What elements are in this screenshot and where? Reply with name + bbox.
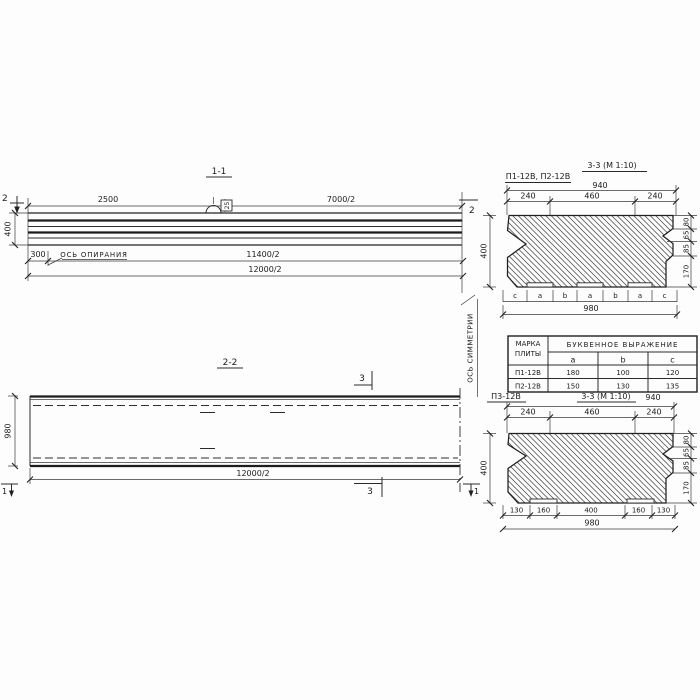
dim-label: 65 [683,448,691,457]
dim-label: 160 [537,507,550,515]
plate-marks-label: П1-12В, П2-12В [506,172,570,181]
dim-label: 240 [520,192,535,201]
dim-label: 400 [4,221,13,236]
section-1-1-title: 1-1 [212,167,227,177]
table-cell: П1-12В [515,369,541,377]
plate-mark-label: П3-12В [491,392,521,401]
support-axis-label: ОСЬ ОПИРАНИЯ [60,251,127,259]
section-3-3-bottom-view: П3-12В 3-3 (М 1:10) 940 240 460 240 130 … [480,392,698,529]
plate-parameters-table: МАРКА ПЛИТЫ БУКВЕННОЕ ВЫРАЖЕНИЕ a b c П1… [508,336,697,392]
table-row: П1-12В 180 100 120 [515,369,679,377]
table-cell: 120 [666,369,679,377]
section-3-3-title: 3-3 (М 1:10) [587,161,636,170]
cut-marker-label: 1 [2,487,7,496]
table-header-mark: ПЛИТЫ [515,350,541,358]
dim-label: 940 [645,393,660,402]
section-3-3-title: 3-3 (М 1:10) [581,392,630,401]
bottom-dim-row: 130 160 400 160 130 [503,505,675,519]
cut-marker-3-bottom: 3 [354,477,382,497]
letter-label: b [563,292,568,300]
support-axis-callout: ОСЬ ОПИРАНИЯ [48,251,128,265]
dim-label: 240 [520,408,535,417]
letter-label: b [613,292,618,300]
table-cell: П2-12В [515,383,541,391]
dim-label: 80 [683,218,691,227]
table-cell: 135 [666,383,679,391]
cut-marker-1-right: 1 [463,484,480,497]
dim-label: 400 [584,507,597,515]
table-cell: 100 [616,369,629,377]
table-subheader: a [571,356,576,365]
technical-drawing-sheet: 1-1 2500 7000/2 25 400 [0,0,700,700]
cut-marker-label: 1 [474,487,479,496]
table-cell: 150 [566,383,579,391]
dim-label: 2500 [98,195,118,204]
letter-label: a [538,292,542,300]
dim-label: 980 [4,423,13,438]
dim-label: 12000/2 [236,469,269,478]
dim-label: 980 [584,519,599,528]
letter-label: c [513,292,517,300]
cut-marker-label: 3 [359,374,365,384]
symmetry-axis-label: ОСЬ СИММЕТРИИ [467,313,475,383]
section-1-1-view: 1-1 2500 7000/2 25 400 [2,167,478,293]
dim-label: 170 [683,481,691,494]
letter-label: a [638,292,642,300]
dim-label: 980 [583,304,598,313]
dim-label: 12000/2 [248,265,281,274]
table-cell: 180 [566,369,579,377]
dim-label: 11400/2 [246,250,279,259]
dim-label: 460 [584,408,599,417]
dim-label: 300 [30,250,45,259]
dim-label: 80 [683,436,691,445]
cut-marker-2-left: 2 [2,194,24,214]
table-header-mark: МАРКА [516,340,541,348]
cut-marker-label: 3 [367,487,373,497]
letter-label: a [588,292,592,300]
dim-label: 240 [647,192,662,201]
slab-cross-section [508,434,673,504]
dim-label: 7000/2 [327,195,355,204]
dim-label: 85 [683,461,691,470]
table-cell: 130 [616,383,629,391]
dim-label: 65 [683,231,691,240]
letter-label: c [663,292,667,300]
dim-label: 460 [584,192,599,201]
table-header-expression: БУКВЕННОЕ ВЫРАЖЕНИЕ [567,341,679,349]
cut-marker-1-left: 1 [1,484,18,497]
dim-label: 400 [480,243,489,258]
cut-marker-label: 2 [469,206,475,216]
lifting-loop-icon: 25 [206,197,232,213]
symmetry-axis-callout: ОСЬ СИММЕТРИИ [461,295,478,397]
section-2-2-title: 2-2 [223,358,238,368]
dim-label: 130 [657,507,670,515]
slab-cross-section [508,216,674,288]
section-2-2-view: 2-2 3 980 12000/2 3 [1,295,480,497]
drawing-canvas: 1-1 2500 7000/2 25 400 [0,0,700,700]
cut-marker-3-top: 3 [354,371,372,390]
dim-label: 85 [683,244,691,253]
table-row: П2-12В 150 130 135 [515,383,679,391]
dim-label: 240 [646,408,661,417]
dim-label: 130 [510,507,523,515]
table-subheader: c [670,356,674,365]
letter-dim-row: c a b a b a c [503,290,677,302]
loop-mark-label: 25 [224,202,231,210]
dim-label: 160 [632,507,645,515]
dim-label: 940 [592,181,607,190]
table-subheader: b [620,356,625,365]
dim-label: 170 [683,265,691,278]
dim-label: 400 [480,460,489,475]
section-3-3-top-view: 3-3 (М 1:10) П1-12В, П2-12В 940 240 460 … [480,161,698,319]
cut-marker-label: 2 [2,194,8,204]
